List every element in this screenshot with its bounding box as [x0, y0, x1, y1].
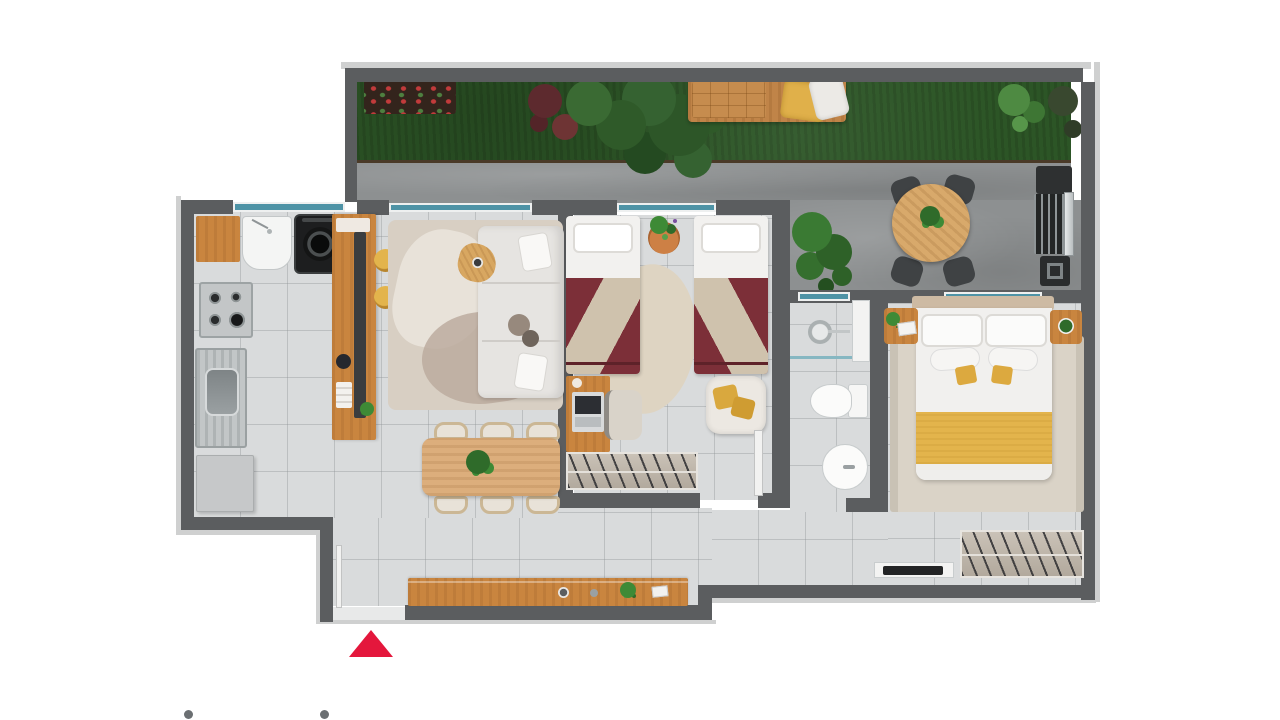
sofa-throw: [522, 330, 539, 347]
sofa-pillow: [513, 352, 548, 392]
tv-flat: [883, 566, 943, 575]
laundry-tub: [242, 216, 292, 270]
toilet: [810, 382, 868, 420]
bed-pillow: [573, 223, 633, 253]
carousel-dot-2[interactable]: [320, 710, 329, 719]
living-sliding-door: [389, 203, 532, 212]
wall-step-vertical: [320, 517, 333, 622]
single-bed-right: [694, 216, 768, 374]
wall-bedroom-bottom: [558, 493, 700, 508]
nightstand-book: [897, 321, 917, 336]
wall-trim-bottom-left: [176, 530, 322, 535]
armchair-pillow: [730, 396, 756, 421]
garden-shrub-right: [998, 84, 1030, 116]
faucet-icon: [252, 219, 269, 229]
master-double-bed: [916, 308, 1052, 480]
carousel-dot-1[interactable]: [184, 710, 193, 719]
entry-door-leaf: [336, 545, 342, 608]
mini-cushion: [955, 364, 978, 385]
wall-left-exterior: [181, 200, 194, 530]
grill-cart-base: [1040, 256, 1070, 286]
cooktop-stove: [199, 282, 253, 338]
wall-top-seg-a: [357, 200, 389, 215]
dining-chair: [434, 496, 468, 514]
nightstand-plant: [1058, 318, 1074, 334]
wall-bottom-left: [181, 517, 332, 530]
island-counter: [332, 214, 376, 440]
counter-plant: [360, 402, 374, 416]
wall-bottom-right: [698, 585, 1095, 598]
tv-console: [874, 562, 954, 578]
garden-shrub-dark: [1048, 86, 1078, 116]
bathroom-window: [798, 292, 850, 301]
desk-chair: [604, 390, 642, 440]
decor-card: [651, 585, 668, 598]
nightstand-left: [884, 308, 918, 344]
kitchen-base-cabinet: [196, 455, 254, 512]
hall-sideboard: [408, 578, 688, 606]
wall-garden-left: [345, 82, 357, 202]
yellow-blanket: [916, 412, 1052, 464]
bench-tufting: [692, 82, 766, 118]
bathroom-niche-shelf: [852, 300, 870, 362]
flower-bed: [364, 80, 456, 114]
tropical-plant-cluster: [566, 80, 612, 126]
terrace-potted-bush: [792, 212, 832, 252]
wall-terrace-bedroom: [772, 200, 790, 302]
wall-top-seg-c: [716, 200, 776, 215]
decor-stone: [590, 589, 598, 597]
dining-table: [422, 438, 560, 496]
wall-top-exterior: [345, 68, 1083, 82]
bed-pillow: [985, 314, 1047, 347]
sink-bowl: [205, 368, 239, 416]
burgundy-blanket: [694, 278, 768, 374]
master-wardrobe-rail: [960, 530, 1084, 578]
wall-trim-bottom-right: [700, 598, 1096, 603]
wall-trim-bottom: [316, 620, 716, 624]
mini-cushion: [991, 365, 1013, 386]
armchair: [706, 376, 766, 434]
towel-stack: [336, 382, 352, 408]
counter-bowl: [336, 354, 351, 369]
wall-bottom: [405, 605, 712, 620]
twin-bedroom-window: [617, 203, 716, 212]
dining-centerpiece-plant: [466, 450, 490, 474]
bedroom-plant-pot: [648, 222, 680, 254]
shower-arm: [828, 330, 850, 333]
decor-cup: [558, 587, 569, 598]
laptop: [572, 392, 604, 432]
bed-pillow: [921, 314, 983, 347]
twin-wardrobe-rail: [566, 452, 698, 490]
entry-threshold: [333, 607, 405, 620]
bed-pillow: [701, 223, 761, 253]
entrance-arrow: [349, 630, 393, 657]
twin-bedroom-door-leaf: [754, 430, 763, 496]
dining-chair: [526, 496, 560, 514]
washbasin: [822, 444, 868, 490]
kitchen-wall-shelf: [196, 216, 240, 262]
dining-chair: [480, 496, 514, 514]
burgundy-blanket: [566, 278, 640, 374]
nightstand-right: [1050, 310, 1082, 344]
wall-bedroom-bath: [772, 302, 790, 508]
table-centerpiece-plant: [920, 206, 940, 226]
red-foliage-plant: [528, 84, 562, 118]
floor-plan-canvas: [0, 0, 1280, 720]
floor-corridor-right: [712, 510, 893, 586]
grill-steel-shelf: [1064, 192, 1074, 256]
barbecue-grill: [1032, 166, 1078, 288]
sofa-pillow: [517, 232, 553, 273]
grill-hood: [1036, 166, 1072, 194]
single-bed-left: [566, 216, 640, 374]
wall-bath-bottom-stub: [846, 498, 876, 512]
wall-top-seg-b: [532, 200, 617, 215]
decor-plant: [620, 582, 636, 598]
kitchen-window: [233, 202, 345, 212]
sink-drainboard: [195, 348, 247, 448]
